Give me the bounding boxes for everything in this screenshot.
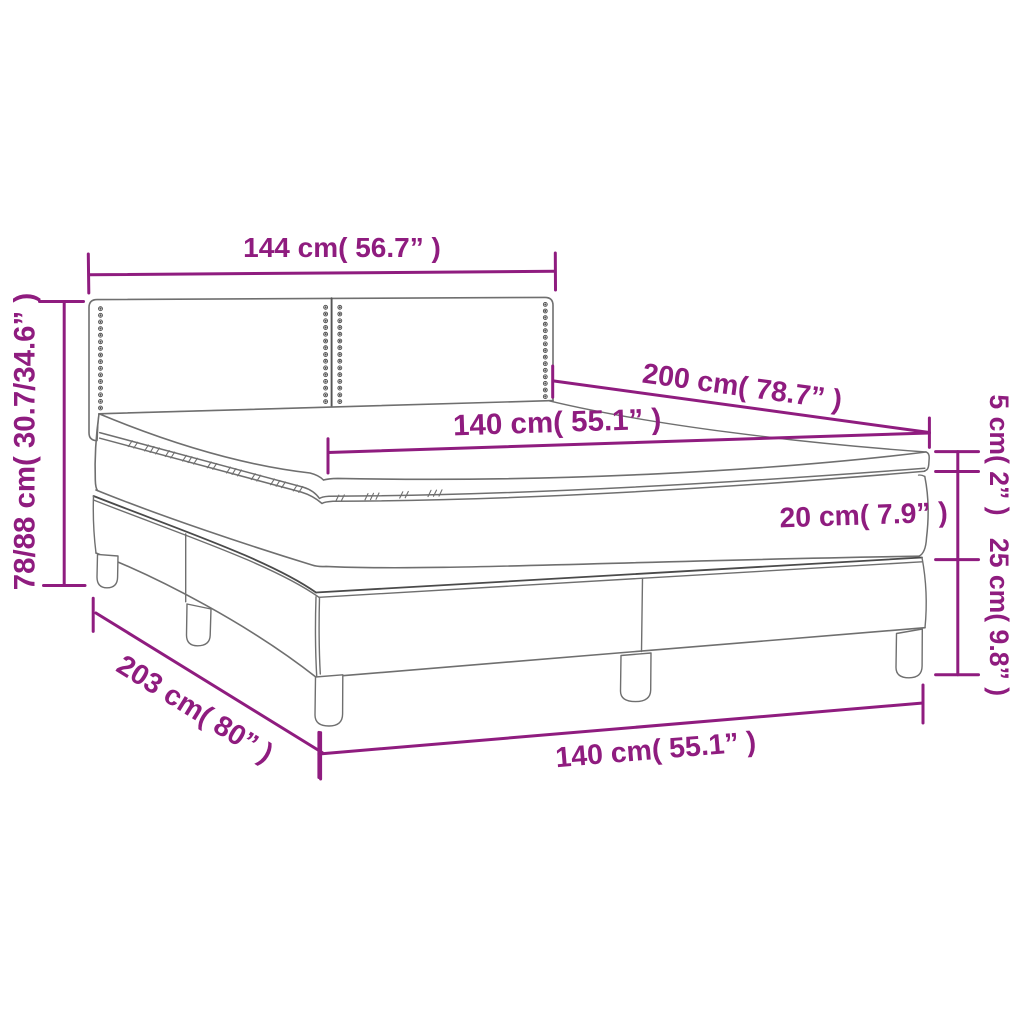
svg-text:140 cm( 55.1” ): 140 cm( 55.1” ) — [453, 403, 662, 443]
svg-text:140 cm( 55.1” ): 140 cm( 55.1” ) — [554, 726, 757, 774]
svg-text:144 cm( 56.7” ): 144 cm( 56.7” ) — [243, 232, 441, 263]
svg-text:25 cm( 9.8” ): 25 cm( 9.8” ) — [984, 538, 1014, 696]
svg-text:5 cm( 2” ): 5 cm( 2” ) — [984, 394, 1014, 515]
svg-text:78/88 cm( 30.7/34.6” ): 78/88 cm( 30.7/34.6” ) — [9, 293, 42, 590]
svg-text:20 cm( 7.9” ): 20 cm( 7.9” ) — [779, 496, 948, 534]
